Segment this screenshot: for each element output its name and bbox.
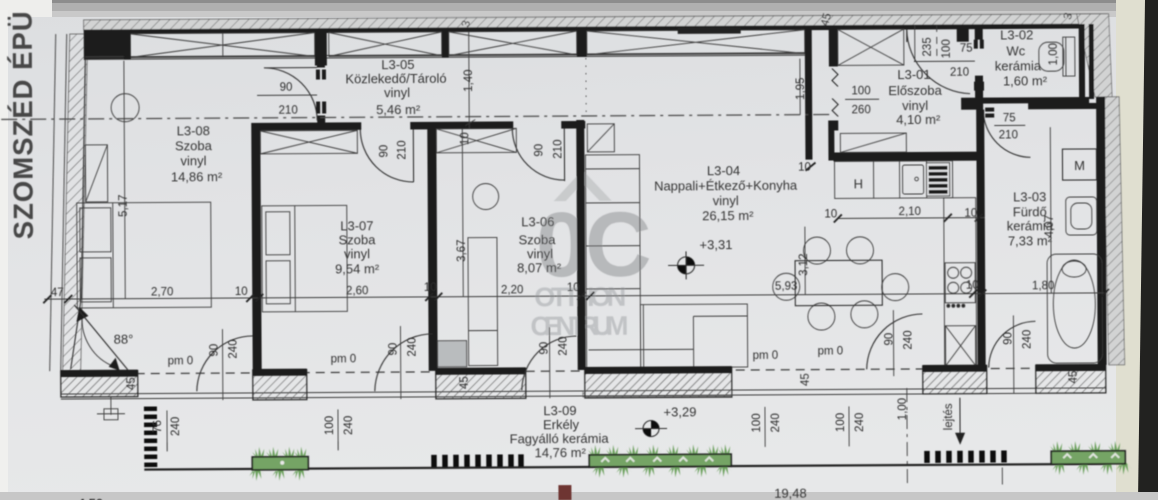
svg-text:90: 90: [539, 342, 551, 355]
svg-text:10: 10: [798, 162, 811, 174]
svg-text:L3-06: L3-06: [521, 214, 554, 229]
svg-text:88°: 88°: [114, 332, 134, 347]
svg-text:10: 10: [964, 208, 977, 220]
svg-text:vinyl: vinyl: [527, 246, 553, 261]
svg-text:76: 76: [152, 420, 164, 433]
svg-text:100: 100: [324, 416, 336, 435]
svg-text:240: 240: [558, 336, 570, 355]
svg-text:L3-08: L3-08: [177, 123, 210, 138]
svg-text:240: 240: [343, 416, 355, 435]
svg-text:Wc: Wc: [1006, 43, 1025, 58]
svg-text:2,10: 2,10: [899, 206, 921, 218]
svg-text:vinyl: vinyl: [180, 153, 206, 168]
svg-text:45: 45: [1068, 371, 1080, 384]
svg-text:19,48: 19,48: [774, 486, 807, 500]
svg-text:Közlekedő/Tároló: Közlekedő/Tároló: [345, 71, 446, 87]
svg-text:2,70: 2,70: [151, 286, 173, 298]
svg-text:90: 90: [388, 343, 400, 356]
svg-text:10: 10: [966, 280, 979, 292]
svg-text:100: 100: [851, 85, 870, 97]
svg-text:5,46 m²: 5,46 m²: [376, 102, 421, 117]
svg-text:210: 210: [552, 139, 564, 158]
svg-text:210: 210: [396, 140, 408, 159]
svg-text:100: 100: [835, 413, 847, 432]
svg-text:2,20: 2,20: [501, 284, 523, 296]
svg-text:45: 45: [126, 377, 138, 390]
svg-text:240: 240: [854, 413, 866, 432]
svg-text:Szoba: Szoba: [175, 138, 213, 153]
svg-text:240: 240: [1021, 330, 1033, 349]
svg-text:3,12: 3,12: [798, 253, 810, 275]
svg-text:lejtés: lejtés: [943, 403, 955, 430]
svg-text:100: 100: [941, 39, 953, 58]
svg-text:5,17: 5,17: [118, 194, 130, 216]
svg-text:L3-02: L3-02: [1000, 27, 1033, 42]
svg-text:vinyl: vinyl: [344, 246, 370, 261]
svg-text:vinyl: vinyl: [384, 85, 410, 100]
svg-text:240: 240: [228, 339, 240, 358]
svg-text:45: 45: [800, 373, 812, 386]
svg-text:45: 45: [459, 376, 471, 389]
svg-text:90: 90: [209, 344, 221, 357]
svg-text:4,07: 4,07: [1044, 215, 1056, 237]
svg-text:240: 240: [170, 417, 182, 436]
svg-text:1,95: 1,95: [795, 77, 807, 99]
svg-text:pm 0: pm 0: [753, 350, 779, 362]
svg-text:Szoba: Szoba: [338, 232, 376, 247]
svg-text:10: 10: [567, 282, 580, 294]
svg-text:2,60: 2,60: [346, 285, 368, 297]
svg-text:210: 210: [279, 105, 298, 117]
svg-text:L3-05: L3-05: [381, 57, 414, 72]
svg-text:75: 75: [1003, 112, 1016, 124]
svg-text:4,50: 4,50: [78, 496, 103, 500]
svg-text:90: 90: [280, 82, 293, 94]
svg-text:Előszoba: Előszoba: [888, 83, 942, 98]
svg-text:8,07 m²: 8,07 m²: [517, 260, 562, 275]
svg-text:pm 0: pm 0: [818, 345, 844, 357]
svg-text:75: 75: [960, 43, 973, 55]
svg-text:14,86 m²: 14,86 m²: [171, 169, 223, 184]
svg-text:26,15 m²: 26,15 m²: [702, 208, 754, 223]
svg-text:100: 100: [751, 413, 763, 432]
svg-text:90: 90: [1002, 332, 1014, 345]
svg-text:1,40: 1,40: [463, 69, 475, 91]
svg-text:260: 260: [852, 104, 871, 116]
svg-text:Fürdő: Fürdő: [1013, 204, 1047, 219]
svg-text:H: H: [854, 176, 863, 191]
svg-text:10: 10: [235, 286, 248, 298]
svg-text:L3-03: L3-03: [1013, 189, 1046, 204]
svg-text:SZOMSZÉD ÉPÜ: SZOMSZÉD ÉPÜ: [7, 10, 39, 239]
svg-text:10: 10: [824, 208, 837, 220]
svg-text:1,80: 1,80: [1032, 280, 1054, 292]
svg-text:4,10 m²: 4,10 m²: [896, 112, 941, 127]
svg-text:Erkély: Erkély: [543, 417, 580, 432]
svg-text:pm 0: pm 0: [331, 353, 357, 365]
svg-text:235: 235: [922, 37, 934, 56]
svg-text:240: 240: [770, 413, 782, 432]
svg-text:90: 90: [533, 144, 545, 157]
svg-text:47: 47: [51, 287, 64, 299]
svg-text:M: M: [1074, 158, 1085, 173]
svg-text:L3-04: L3-04: [707, 163, 740, 178]
svg-text:14,76 m²: 14,76 m²: [535, 445, 587, 460]
svg-text:240: 240: [902, 330, 914, 349]
svg-text:L3-09: L3-09: [543, 403, 576, 418]
svg-text:90: 90: [883, 333, 895, 346]
svg-text:vinyl: vinyl: [902, 98, 928, 113]
svg-text:3,67: 3,67: [456, 239, 468, 261]
svg-text:90: 90: [378, 145, 390, 158]
svg-text:+3,29: +3,29: [663, 404, 696, 419]
svg-text:1,60 m²: 1,60 m²: [1003, 73, 1048, 88]
svg-text:Nappali+Étkező+Konyha: Nappali+Étkező+Konyha: [654, 178, 798, 194]
svg-text:9,54 m²: 9,54 m²: [335, 261, 380, 276]
svg-text:10: 10: [424, 282, 437, 294]
svg-text:1,00: 1,00: [1048, 43, 1060, 65]
svg-text:kerámia: kerámia: [995, 58, 1042, 73]
svg-text:vinyl: vinyl: [713, 193, 739, 208]
svg-text:+3,31: +3,31: [699, 237, 732, 252]
svg-text:240: 240: [407, 337, 419, 356]
svg-text:Fagyálló kerámia: Fagyálló kerámia: [510, 431, 610, 447]
svg-text:pm 0: pm 0: [168, 355, 194, 367]
svg-text:10: 10: [459, 132, 471, 145]
svg-text:Szoba: Szoba: [518, 232, 556, 247]
svg-text:210: 210: [950, 67, 969, 79]
svg-text:5,93: 5,93: [775, 281, 797, 293]
svg-text:L3-07: L3-07: [340, 218, 373, 233]
svg-text:210: 210: [999, 129, 1018, 141]
